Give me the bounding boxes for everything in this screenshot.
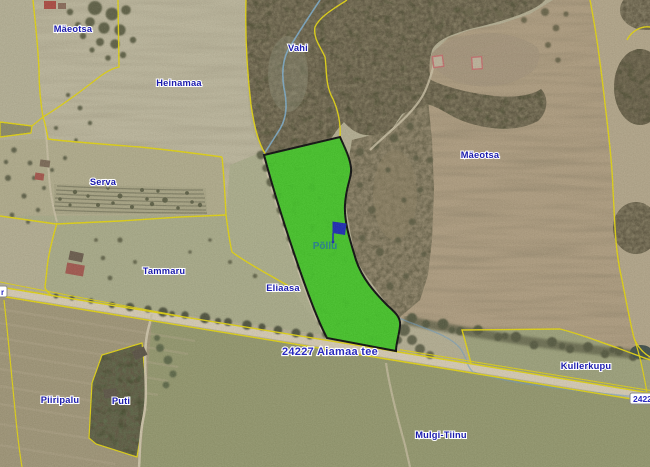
svg-text:Puti: Puti <box>112 396 130 406</box>
svg-text:Mulgi-Tiinu: Mulgi-Tiinu <box>415 430 467 440</box>
svg-text:Eliaasa: Eliaasa <box>266 283 300 293</box>
svg-text:Heinamaa: Heinamaa <box>156 78 202 88</box>
svg-text:Tammaru: Tammaru <box>143 266 186 276</box>
svg-text:Piiripalu: Piiripalu <box>41 395 80 405</box>
svg-text:Serva: Serva <box>90 177 117 187</box>
svg-text:Kullerkupu: Kullerkupu <box>561 361 612 371</box>
svg-text:Mäeotsa: Mäeotsa <box>54 24 93 34</box>
svg-text:2422: 2422 <box>633 394 650 404</box>
svg-text:Mäeotsa: Mäeotsa <box>461 150 500 160</box>
svg-text:24227 Aiamaa tee: 24227 Aiamaa tee <box>282 346 378 358</box>
svg-text:Põllu: Põllu <box>313 241 337 252</box>
svg-text:Vahi: Vahi <box>288 43 308 53</box>
svg-text:r: r <box>1 288 4 297</box>
